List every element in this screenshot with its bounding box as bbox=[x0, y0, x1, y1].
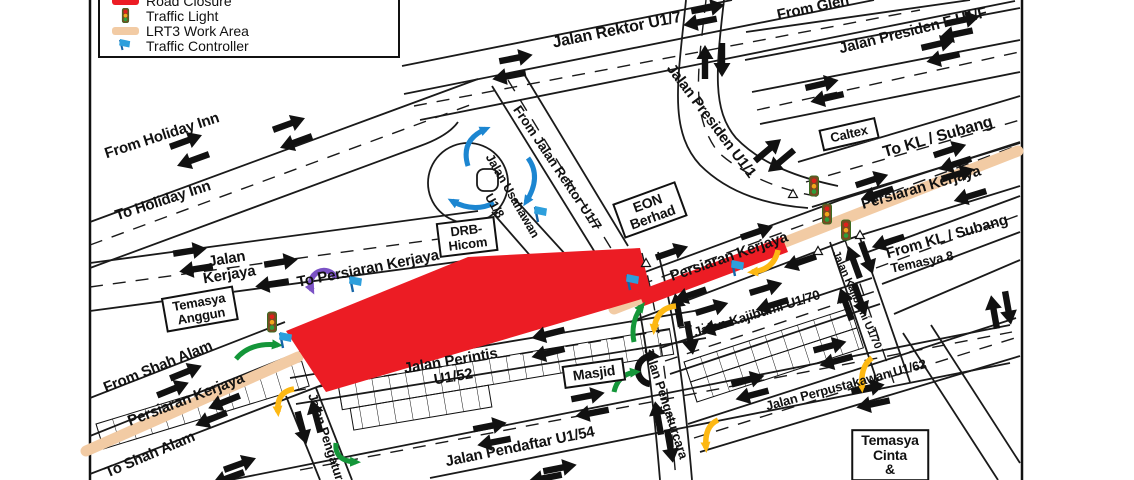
legend-label: LRT3 Work Area bbox=[146, 23, 249, 39]
map-legend: Road Closure Traffic Light LRT3 Work Are… bbox=[98, 0, 400, 58]
legend-label: Traffic Light bbox=[146, 8, 218, 24]
traffic-light-icon bbox=[112, 8, 139, 23]
traffic-plan-map: From Holiday Inn To Holiday Inn Jalan Re… bbox=[0, 0, 1134, 480]
legend-label: Traffic Controller bbox=[146, 38, 249, 54]
lrt3-work-area-swatch bbox=[112, 27, 139, 35]
traffic-controller-flag-icon bbox=[112, 38, 139, 53]
legend-item-traffic-controller: Traffic Controller bbox=[112, 38, 398, 53]
legend-item-lrt3-work-area: LRT3 Work Area bbox=[112, 23, 398, 38]
legend-item-traffic-light: Traffic Light bbox=[112, 8, 398, 23]
road-closure-swatch bbox=[112, 0, 139, 5]
landmark-drb-hicom: DRB- Hicom bbox=[436, 216, 499, 258]
landmark-temasya-cinta: Temasya Cinta & bbox=[851, 429, 929, 480]
